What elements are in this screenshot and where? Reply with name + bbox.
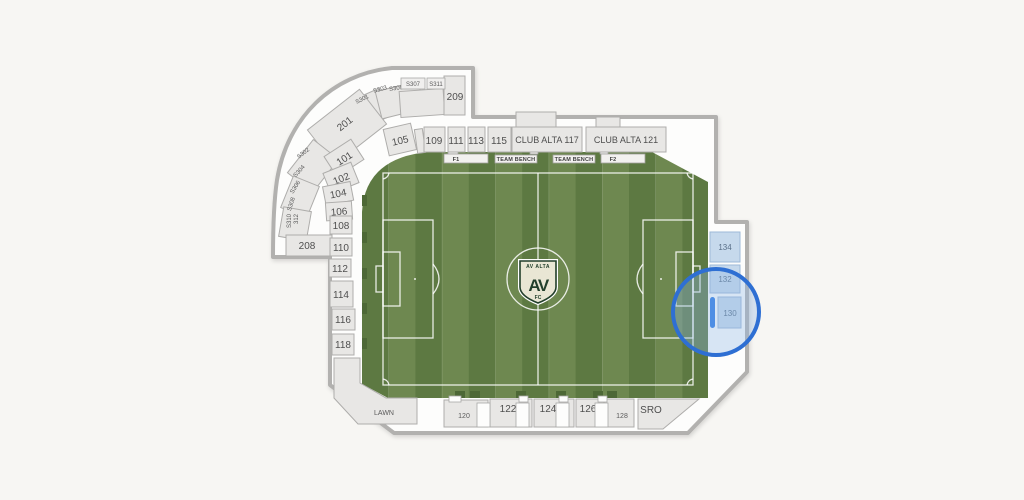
field-box-f1-label: F1	[453, 157, 460, 163]
section-108-label: 108	[333, 221, 350, 232]
section-114-label: 114	[333, 290, 349, 301]
section-128-label: 128	[616, 413, 628, 420]
field-edge-nub	[470, 391, 480, 398]
section-club-alta-121-label: CLUB ALTA 121	[594, 135, 658, 145]
suite-s310-label: S310	[287, 213, 293, 228]
field-box-f2-label: F2	[610, 157, 617, 163]
section-209-label: 209	[447, 92, 464, 103]
section-110-label: 110	[333, 243, 349, 254]
section-208-label: 208	[299, 241, 316, 252]
tunnel-nub	[598, 396, 607, 402]
tunnel	[595, 403, 608, 427]
section-126-label: 126	[580, 404, 597, 415]
field-edge-nub	[362, 232, 367, 243]
field-edge-nub	[362, 303, 367, 314]
tunnel-nub	[559, 396, 568, 402]
section-112-label: 112	[332, 264, 348, 275]
field-edge-nub	[362, 195, 367, 206]
team-bench-left-label: TEAM BENCH	[497, 157, 536, 163]
section-118-label: 118	[335, 340, 351, 351]
club-alta-121-tab	[596, 117, 620, 128]
section-111-label: 111	[448, 136, 464, 147]
club-crest: AV ALTA AV FC	[520, 261, 556, 303]
crest-fc: FC	[535, 295, 542, 301]
section-club-alta-117-label: CLUB ALTA 117	[515, 135, 579, 145]
field-edge-nub	[362, 268, 367, 279]
section-120-label: 120	[458, 413, 470, 420]
section-122-label: 122	[500, 404, 517, 415]
section-134-label: 134	[718, 243, 732, 252]
zoom-highlight-circle	[673, 269, 759, 355]
tunnel	[516, 403, 529, 427]
suite-s307-label: S307	[406, 82, 421, 88]
section-124-label: 124	[540, 404, 557, 415]
suite-s311-label: S311	[429, 82, 443, 88]
section-116-label: 116	[335, 315, 351, 326]
suite-s312-label: 312	[294, 213, 300, 224]
crest-monogram: AV	[528, 276, 550, 295]
seating-map: AV ALTA AV FC F1 TEAM BENCH TEAM BENCH F…	[0, 0, 1024, 500]
section-109-label: 109	[426, 136, 443, 147]
upper-deck-segment	[399, 88, 445, 117]
section-sro-label: SRO	[640, 405, 662, 416]
field-edge-nub	[362, 338, 367, 349]
stadium-map-svg: AV ALTA AV FC F1 TEAM BENCH TEAM BENCH F…	[0, 0, 1024, 500]
tunnel-nub	[449, 396, 461, 402]
field-box-f2[interactable]	[601, 154, 645, 163]
field-edge-nub	[607, 391, 617, 398]
tunnel	[477, 403, 490, 427]
field-box-f1[interactable]	[444, 154, 488, 163]
team-bench-right-label: TEAM BENCH	[555, 157, 594, 163]
club-alta-117-tab	[516, 112, 556, 128]
tunnel	[556, 403, 569, 427]
section-lawn-label: LAWN	[374, 410, 394, 417]
section-113-label: 113	[468, 136, 484, 147]
crest-club-name: AV ALTA	[526, 264, 550, 270]
section-115-label: 115	[491, 136, 507, 147]
tunnel-nub	[519, 396, 528, 402]
